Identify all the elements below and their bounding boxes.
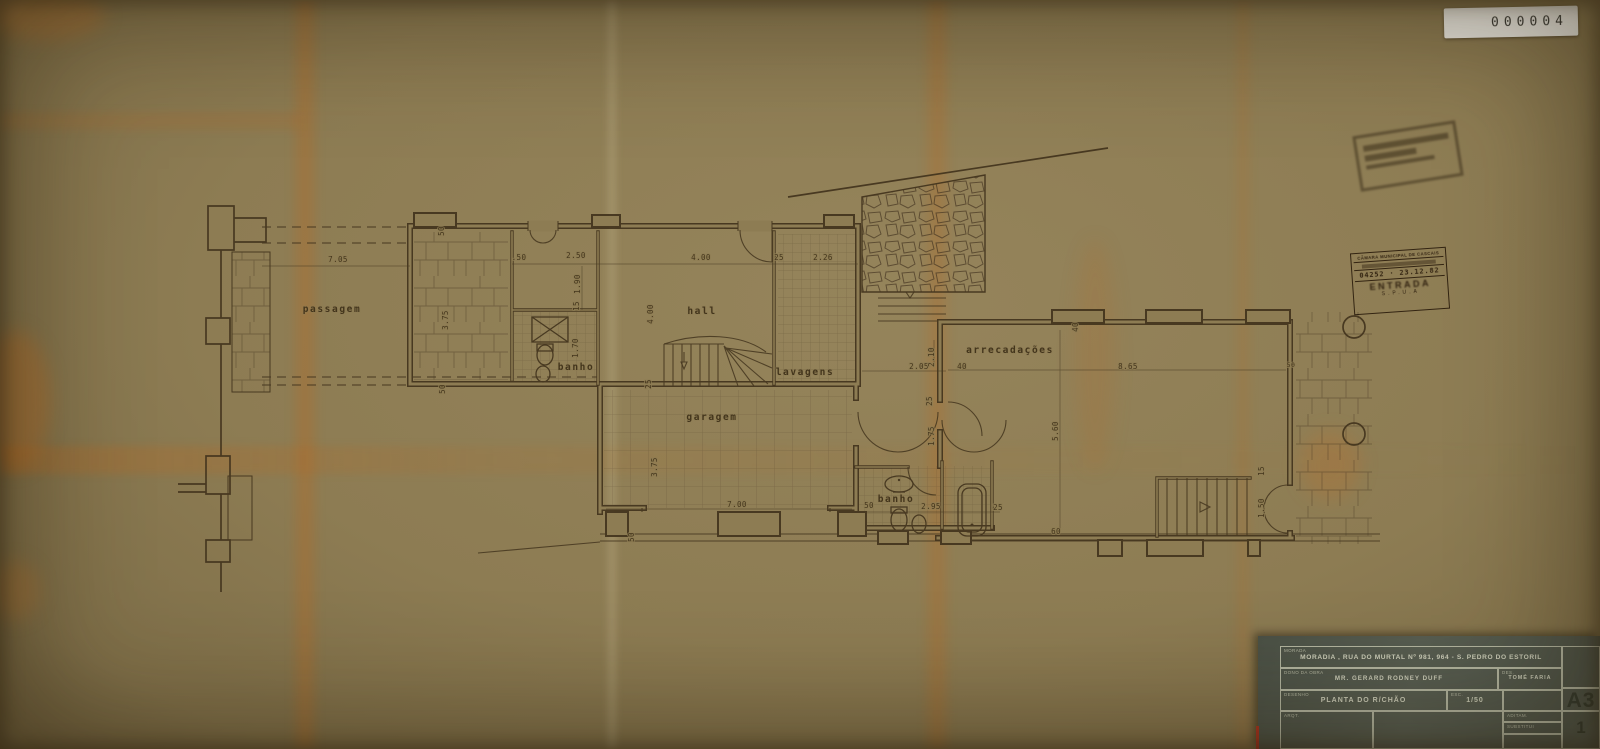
scanned-floorplan-sheet: 7.05 50 .50 2.50 1.90 15 3.75 50 1.70 4.… bbox=[0, 0, 1600, 749]
room-label-hall: hall bbox=[687, 306, 716, 317]
wing-staircase bbox=[1167, 478, 1247, 536]
dim-label: 4.00 bbox=[691, 253, 711, 262]
dim-label: 2.95 bbox=[921, 502, 941, 511]
dim-label: 1.90 bbox=[573, 274, 582, 294]
dim-label: 25 bbox=[925, 396, 934, 406]
dim-label: 2.10 bbox=[927, 347, 936, 367]
room-label-garagem: garagem bbox=[686, 412, 737, 423]
dim-label: 25 bbox=[774, 253, 784, 262]
dim-label: 50 bbox=[1287, 361, 1296, 369]
dim-label: 50 bbox=[864, 501, 874, 510]
room-label-arrecadacoes: arrecadações bbox=[966, 345, 1054, 356]
room-label-passagem: passagem bbox=[303, 304, 362, 315]
dim-label: 1.75 bbox=[927, 426, 936, 446]
dim-label: 50 bbox=[437, 226, 446, 236]
room-label-banho-1: banho bbox=[558, 362, 595, 373]
hall-staircase bbox=[664, 336, 772, 386]
entrance-steps bbox=[878, 292, 946, 321]
dim-label: 7.00 bbox=[727, 500, 747, 509]
room-label-lavagens: lavagens bbox=[776, 367, 835, 378]
room-label-banho-2: banho bbox=[878, 494, 915, 505]
dim-label: 1.50 bbox=[1257, 498, 1266, 518]
dim-label: 15 bbox=[1257, 466, 1266, 476]
dim-label: .50 bbox=[512, 253, 527, 262]
dim-label: 40 bbox=[957, 362, 967, 371]
dim-label: 1.70 bbox=[571, 338, 580, 358]
dim-label: 15 bbox=[572, 301, 581, 311]
dim-label: 4.00 bbox=[646, 304, 655, 324]
dim-label: 50 bbox=[438, 384, 447, 394]
dim-label: 25 bbox=[993, 503, 1003, 512]
dim-label: 50 bbox=[627, 532, 636, 542]
dim-label: 2.05 bbox=[909, 362, 929, 371]
floor-patterns bbox=[232, 175, 1372, 544]
stone-rubble-wall bbox=[862, 175, 985, 292]
dim-label: 5.60 bbox=[1051, 421, 1060, 441]
dim-label: 3.75 bbox=[441, 310, 450, 330]
dim-label: 3.75 bbox=[650, 457, 659, 477]
floor-plan-drawing: 7.05 50 .50 2.50 1.90 15 3.75 50 1.70 4.… bbox=[0, 0, 1600, 749]
dim-label: 2.50 bbox=[566, 251, 586, 260]
dim-label: 25 bbox=[644, 379, 653, 389]
dim-label: 8.65 bbox=[1118, 362, 1138, 371]
dim-label: 60 bbox=[1051, 527, 1061, 536]
dim-label: 40 bbox=[1071, 322, 1080, 332]
dim-label: 7.05 bbox=[328, 255, 348, 264]
dim-label: 2.26 bbox=[813, 253, 833, 262]
